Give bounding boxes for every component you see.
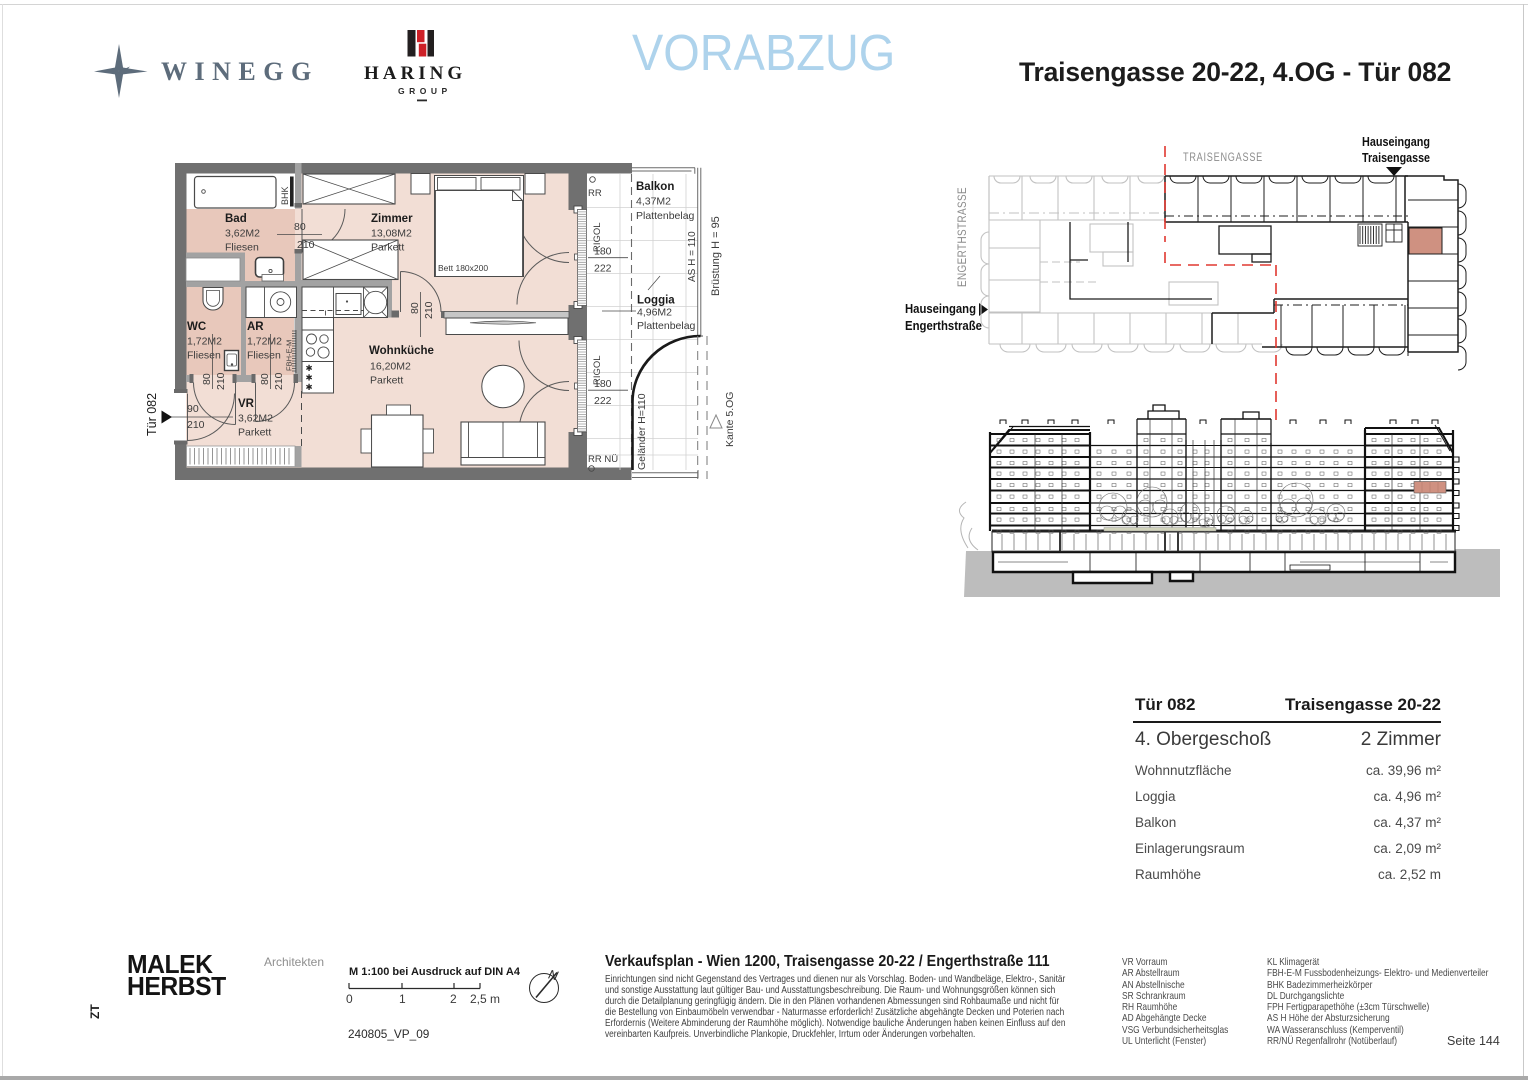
svg-text:AR: AR bbox=[247, 321, 264, 333]
svg-text:4,37M2: 4,37M2 bbox=[636, 196, 671, 208]
svg-text:210: 210 bbox=[187, 419, 205, 431]
svg-text:Bett 180x200: Bett 180x200 bbox=[438, 263, 488, 273]
svg-text:Wohnküche: Wohnküche bbox=[369, 345, 434, 357]
svg-text:Traisengasse: Traisengasse bbox=[1362, 151, 1430, 165]
svg-text:Hauseingang: Hauseingang bbox=[905, 302, 976, 316]
svg-text:FBH-E-M: FBH-E-M bbox=[285, 340, 294, 371]
svg-text:Geländer H=110: Geländer H=110 bbox=[636, 393, 648, 470]
svg-text:BHK: BHK bbox=[280, 186, 290, 205]
svg-text:AS H = 110: AS H = 110 bbox=[687, 231, 698, 282]
svg-text:3,62M2: 3,62M2 bbox=[225, 228, 260, 240]
svg-text:222: 222 bbox=[594, 395, 612, 407]
svg-text:Hauseingang: Hauseingang bbox=[1362, 135, 1430, 149]
svg-text:80: 80 bbox=[294, 221, 306, 233]
svg-text:Zimmer: Zimmer bbox=[371, 213, 413, 225]
svg-text:HARING: HARING bbox=[364, 63, 466, 84]
svg-text:90: 90 bbox=[187, 403, 199, 415]
svg-text:Bad: Bad bbox=[225, 213, 247, 225]
svg-text:RR: RR bbox=[588, 188, 602, 199]
svg-text:80: 80 bbox=[201, 373, 213, 385]
svg-text:RIGOL: RIGOL bbox=[592, 222, 603, 252]
svg-text:✱: ✱ bbox=[306, 382, 313, 392]
svg-text:16,20M2: 16,20M2 bbox=[370, 361, 411, 373]
svg-text:ENGERTHSTRASSE: ENGERTHSTRASSE bbox=[955, 187, 969, 287]
svg-text:Fliesen: Fliesen bbox=[187, 350, 221, 362]
svg-text:3,62M2: 3,62M2 bbox=[238, 413, 273, 425]
svg-text:WC: WC bbox=[187, 321, 206, 333]
svg-text:Fliesen: Fliesen bbox=[247, 350, 281, 362]
svg-text:1,72M2: 1,72M2 bbox=[187, 336, 222, 348]
svg-text:80: 80 bbox=[259, 373, 271, 385]
svg-text:WINEGG: WINEGG bbox=[161, 57, 319, 86]
svg-text:Parkett: Parkett bbox=[370, 375, 403, 387]
svg-text:1,72M2: 1,72M2 bbox=[247, 336, 282, 348]
svg-text:Loggia: Loggia bbox=[637, 295, 675, 307]
svg-text:Balkon: Balkon bbox=[636, 181, 674, 193]
svg-text:Kante 5.OG: Kante 5.OG bbox=[724, 392, 736, 447]
svg-text:Plattenbelag: Plattenbelag bbox=[636, 210, 695, 222]
svg-text:Tür 082: Tür 082 bbox=[145, 393, 159, 436]
svg-text:210: 210 bbox=[423, 301, 435, 319]
svg-text:210: 210 bbox=[297, 239, 315, 251]
svg-text:Parkett: Parkett bbox=[371, 242, 404, 254]
svg-text:Fliesen: Fliesen bbox=[225, 242, 259, 254]
svg-text:4,96M2: 4,96M2 bbox=[637, 307, 672, 319]
svg-text:210: 210 bbox=[273, 372, 285, 390]
svg-text:✱: ✱ bbox=[306, 373, 313, 383]
svg-text:✱: ✱ bbox=[306, 363, 313, 373]
svg-text:Brüstung H = 95: Brüstung H = 95 bbox=[710, 216, 722, 296]
svg-text:80: 80 bbox=[409, 302, 421, 314]
svg-text:GROUP: GROUP bbox=[398, 86, 452, 96]
svg-text:Plattenbelag: Plattenbelag bbox=[637, 320, 696, 332]
svg-text:N: N bbox=[547, 966, 560, 983]
svg-text:RIGOL: RIGOL bbox=[592, 355, 603, 385]
svg-text:TRAISENGASSE: TRAISENGASSE bbox=[1183, 150, 1263, 164]
svg-text:Parkett: Parkett bbox=[238, 427, 271, 439]
svg-text:222: 222 bbox=[594, 263, 612, 275]
svg-text:VR: VR bbox=[238, 398, 255, 410]
svg-text:Engerthstraße: Engerthstraße bbox=[905, 319, 982, 333]
svg-text:210: 210 bbox=[215, 372, 227, 390]
svg-text:13,08M2: 13,08M2 bbox=[371, 228, 412, 240]
svg-text:RR NÜ: RR NÜ bbox=[588, 454, 618, 465]
